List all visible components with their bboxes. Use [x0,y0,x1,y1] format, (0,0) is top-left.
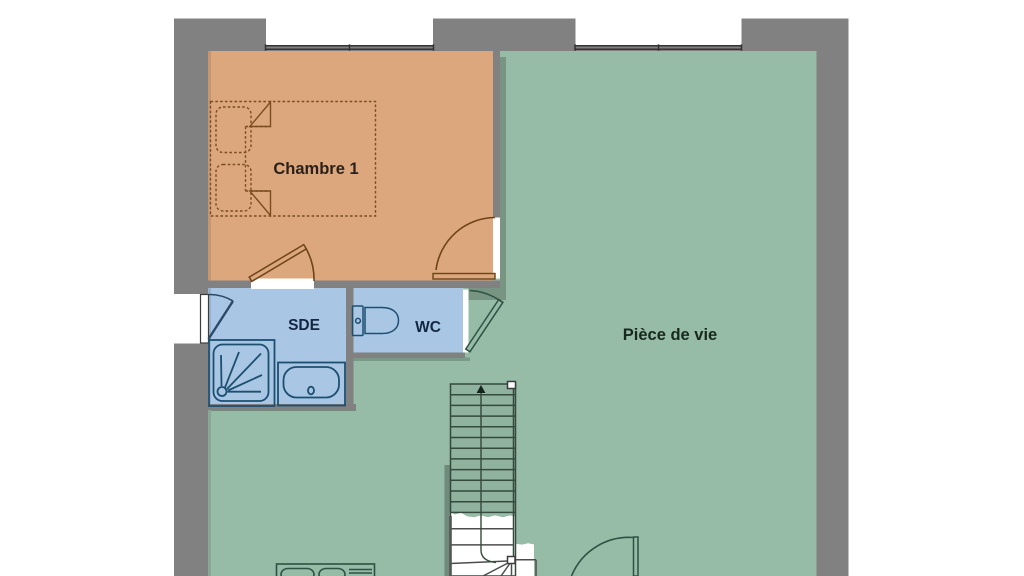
svg-text:Chambre 1: Chambre 1 [273,160,358,178]
svg-text:SDE: SDE [288,317,320,334]
svg-text:WC: WC [415,319,441,336]
svg-text:Pièce de vie: Pièce de vie [623,326,717,344]
